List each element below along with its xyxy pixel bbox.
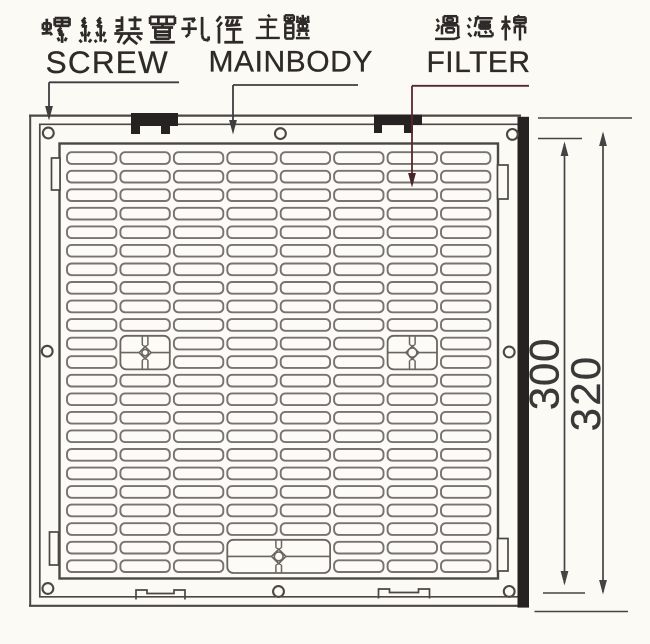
svg-text:300: 300: [521, 338, 568, 410]
svg-text:MAINBODY: MAINBODY: [208, 46, 372, 79]
svg-text:FILTER: FILTER: [426, 46, 530, 79]
svg-text:320: 320: [562, 355, 609, 432]
svg-text:SCREW: SCREW: [46, 44, 169, 80]
